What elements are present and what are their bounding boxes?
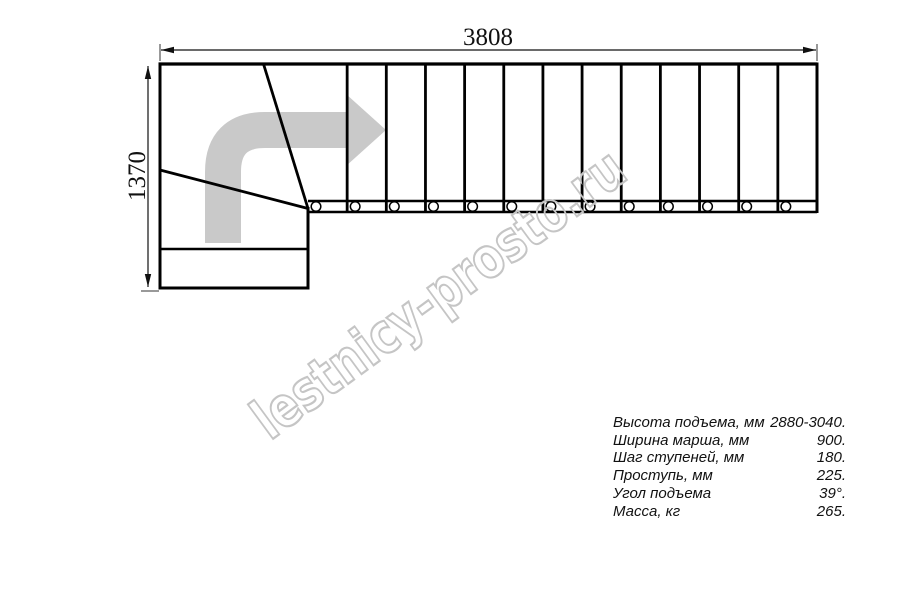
screw-icon [468,202,478,212]
specs-table: Высота подъема, мм2880-3040.Ширина марша… [613,414,846,520]
spec-row: Шаг ступеней, мм180. [613,449,846,467]
screw-icon [624,202,634,212]
direction-arrow-head [346,94,386,166]
spec-value: 225. [817,467,846,485]
spec-label: Шаг ступеней, мм [613,449,744,467]
screw-icon [429,202,439,212]
screw-icon [311,202,321,212]
dim-arrow-down-icon [145,274,151,287]
spec-row: Угол подъема39°. [613,485,846,503]
screw-icon [781,202,791,212]
spec-row: Масса, кг265. [613,503,846,521]
spec-label: Масса, кг [613,503,680,521]
spec-value: 900. [817,432,846,450]
spec-label: Ширина марша, мм [613,432,749,450]
dimension-width-label: 3808 [463,24,513,51]
spec-value: 180. [817,449,846,467]
dimension-width: 3808 [160,24,817,61]
dimension-height: 1370 [124,66,159,291]
spec-row: Проступь, мм225. [613,467,846,485]
spec-row: Высота подъема, мм2880-3040. [613,414,846,432]
dimension-height-label: 1370 [124,151,151,201]
spec-label: Угол подъема [613,485,711,503]
spec-row: Ширина марша, мм900. [613,432,846,450]
spec-value: 265. [817,503,846,521]
dim-arrow-left-icon [161,47,174,53]
screw-icon [742,202,752,212]
spec-label: Высота подъема, мм [613,414,765,432]
screw-icon [703,202,713,212]
screw-icon [664,202,674,212]
direction-arrow-shaft [223,130,347,243]
screw-icon [350,202,360,212]
spec-value: 2880-3040. [770,414,846,432]
spec-value: 39°. [819,485,846,503]
direction-arrow [223,94,386,243]
spec-label: Проступь, мм [613,467,713,485]
dim-arrow-right-icon [803,47,816,53]
stair-drawing-page: 3808 1370 lestnicy-prosto.ru Высота подъ… [0,0,900,600]
screw-icon [390,202,400,212]
dim-arrow-up-icon [145,66,151,79]
